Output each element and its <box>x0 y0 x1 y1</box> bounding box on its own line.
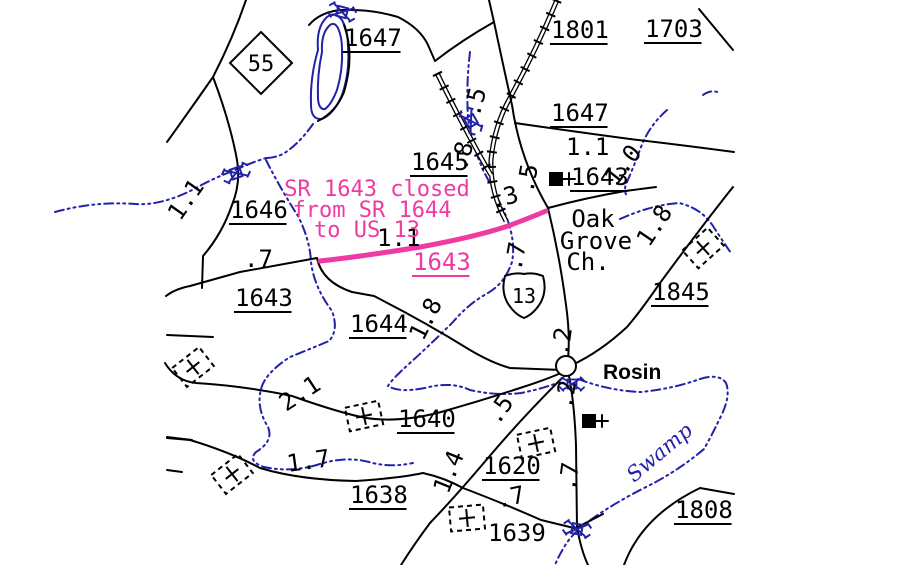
map-label-text: 1.7 <box>285 444 332 478</box>
map-label-text: 1644 <box>350 310 408 338</box>
map-label-text: 1620 <box>483 452 541 480</box>
cemetery-icon <box>211 454 253 494</box>
map-label-text: Rosin <box>603 361 661 384</box>
map-label: 1845 <box>651 278 710 306</box>
map-label-text: 1.8 <box>631 200 678 252</box>
map-label: 1646 <box>229 196 288 224</box>
road-stub-3 <box>167 470 182 472</box>
map-label: 1644 <box>349 310 408 338</box>
map-label-text: 1.1 <box>162 174 210 226</box>
map-label-text: 2.1 <box>274 370 326 417</box>
map-label: 1647 <box>550 99 609 127</box>
map-label: .2 <box>550 378 582 411</box>
road-1647-link <box>435 22 494 61</box>
road-stub-1 <box>167 335 213 337</box>
map-label-text: 1801 <box>551 16 609 44</box>
map-label: 1643 <box>234 284 293 312</box>
map-label: Ch. <box>566 248 609 276</box>
map-label-text: 1640 <box>398 405 456 433</box>
cemetery-icon <box>172 347 214 387</box>
map-label-text: 1643 <box>413 248 471 276</box>
map-label: 1.8 <box>631 200 678 252</box>
map-label: .2 <box>546 325 578 358</box>
map-label-text: 1639 <box>488 519 546 547</box>
map-label-text: .7 <box>493 480 527 513</box>
map-label: 1638 <box>349 481 408 509</box>
map-label-text: 1.1 <box>566 133 609 161</box>
map-label: 1640 <box>397 405 456 433</box>
nc-route-marker: 55 <box>230 32 292 94</box>
pond-outline-inner <box>318 24 342 109</box>
map-label: .5 <box>480 390 520 430</box>
map-label: 1.7 <box>285 444 332 478</box>
map-label: .7 <box>499 240 532 273</box>
map-label-text: 1845 <box>652 278 710 306</box>
map-label: 1801 <box>550 16 609 44</box>
map-label: 1639 <box>488 519 546 547</box>
map-label-text: 1.8 <box>403 293 448 344</box>
map-label-text: .7 <box>244 245 273 273</box>
map-label: 1.8 <box>403 293 448 344</box>
us-route-number: 13 <box>512 284 536 308</box>
stream-fragment <box>703 91 720 95</box>
map-label: .7 <box>493 480 527 513</box>
map-label-text: 1647 <box>551 99 609 127</box>
church-icon <box>582 414 608 428</box>
map-label-text: .2 <box>550 378 582 411</box>
map-label-text: Ch. <box>566 248 609 276</box>
map-label: 1.1 <box>566 133 609 161</box>
map-label-text: 1808 <box>675 496 733 524</box>
cemetery-icon <box>345 401 383 432</box>
map-label-text: 1.4 <box>428 447 470 498</box>
map-label-text: .5 <box>480 390 520 430</box>
map-label: 1643 <box>412 248 471 276</box>
us-route-marker: 13 <box>503 273 544 318</box>
map-label: 2.1 <box>274 370 326 417</box>
map-label-text: .2 <box>546 325 578 358</box>
map-label: 1703 <box>644 15 703 43</box>
map-label-text: 1643 <box>235 284 293 312</box>
road-1646-north <box>167 77 213 142</box>
map-label-text: .7 <box>553 460 585 493</box>
map-canvas: 55 13 1647180117031647164516431646164316… <box>0 0 906 565</box>
map-label: Swamp <box>622 418 697 487</box>
map-label-text: .5 <box>458 84 493 119</box>
map-label: 1.4 <box>428 447 470 498</box>
map-label: 1808 <box>674 496 733 524</box>
map-label: .7 <box>553 460 585 493</box>
map-label-text: 1638 <box>350 481 408 509</box>
nc-route-number: 55 <box>248 52 275 77</box>
stream-pond-outlet <box>266 124 313 158</box>
town-circle-rosin <box>556 356 576 376</box>
map-label-text: Swamp <box>622 418 697 487</box>
map-label: 1620 <box>482 452 541 480</box>
map-label-text: 1647 <box>344 24 402 52</box>
map-label-text: 1703 <box>645 15 703 43</box>
cemetery-icon <box>449 505 485 532</box>
map-label: .7 <box>244 245 273 273</box>
map-label-text: 1646 <box>230 196 288 224</box>
road-topright <box>699 9 733 50</box>
map-label-text: .7 <box>499 240 532 273</box>
map-label: Rosin <box>603 361 661 384</box>
map-label: 1647 <box>343 24 402 52</box>
map-label-text: to US 13 <box>314 218 420 243</box>
map-label: to US 13 <box>314 218 420 243</box>
bridge-icon <box>220 161 252 186</box>
map-label: .5 <box>458 84 493 119</box>
map-label: 1.1 <box>162 174 210 226</box>
